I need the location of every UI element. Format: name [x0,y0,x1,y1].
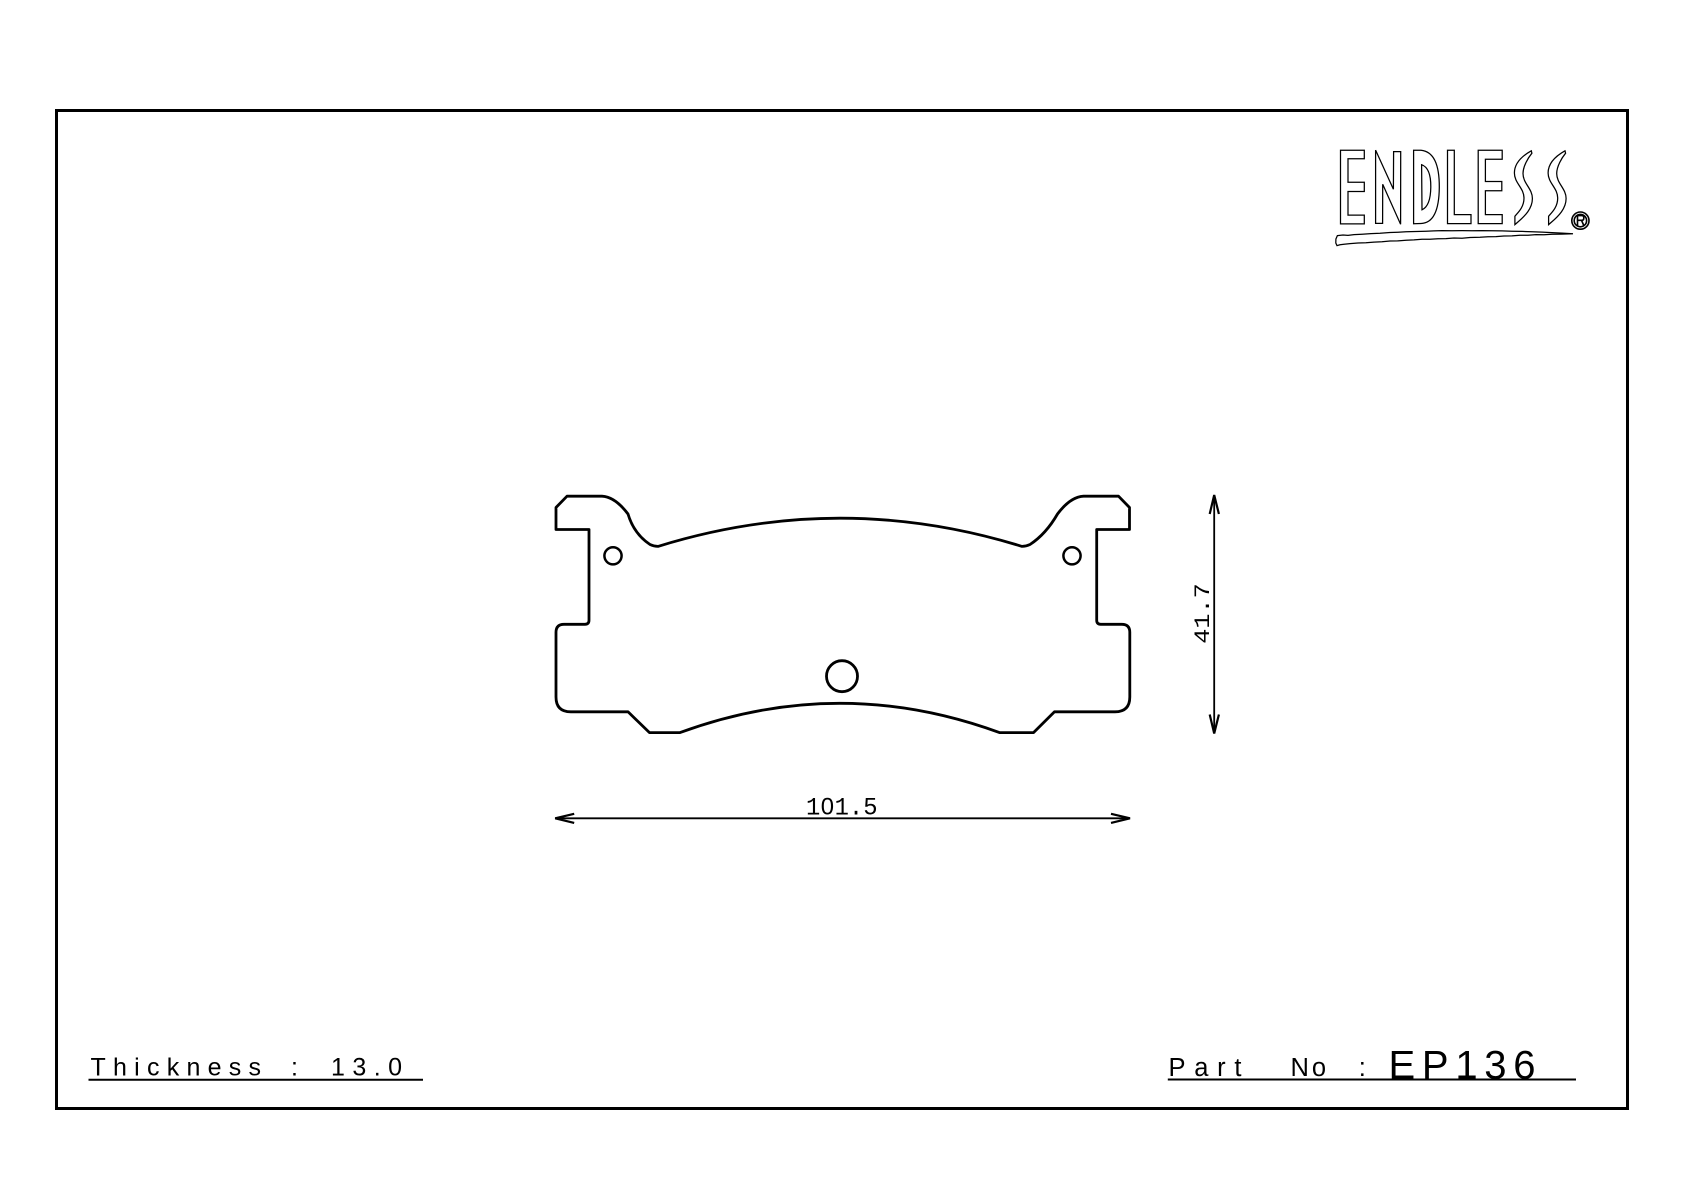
svg-text::: : [291,1053,298,1081]
svg-text:Thickness: Thickness [91,1053,262,1081]
svg-text:No: No [1291,1054,1327,1082]
svg-text::: : [1359,1054,1366,1082]
svg-text:101.5: 101.5 [806,794,878,823]
svg-text:41.7: 41.7 [1191,583,1216,644]
svg-text:EP136: EP136 [1389,1043,1536,1087]
